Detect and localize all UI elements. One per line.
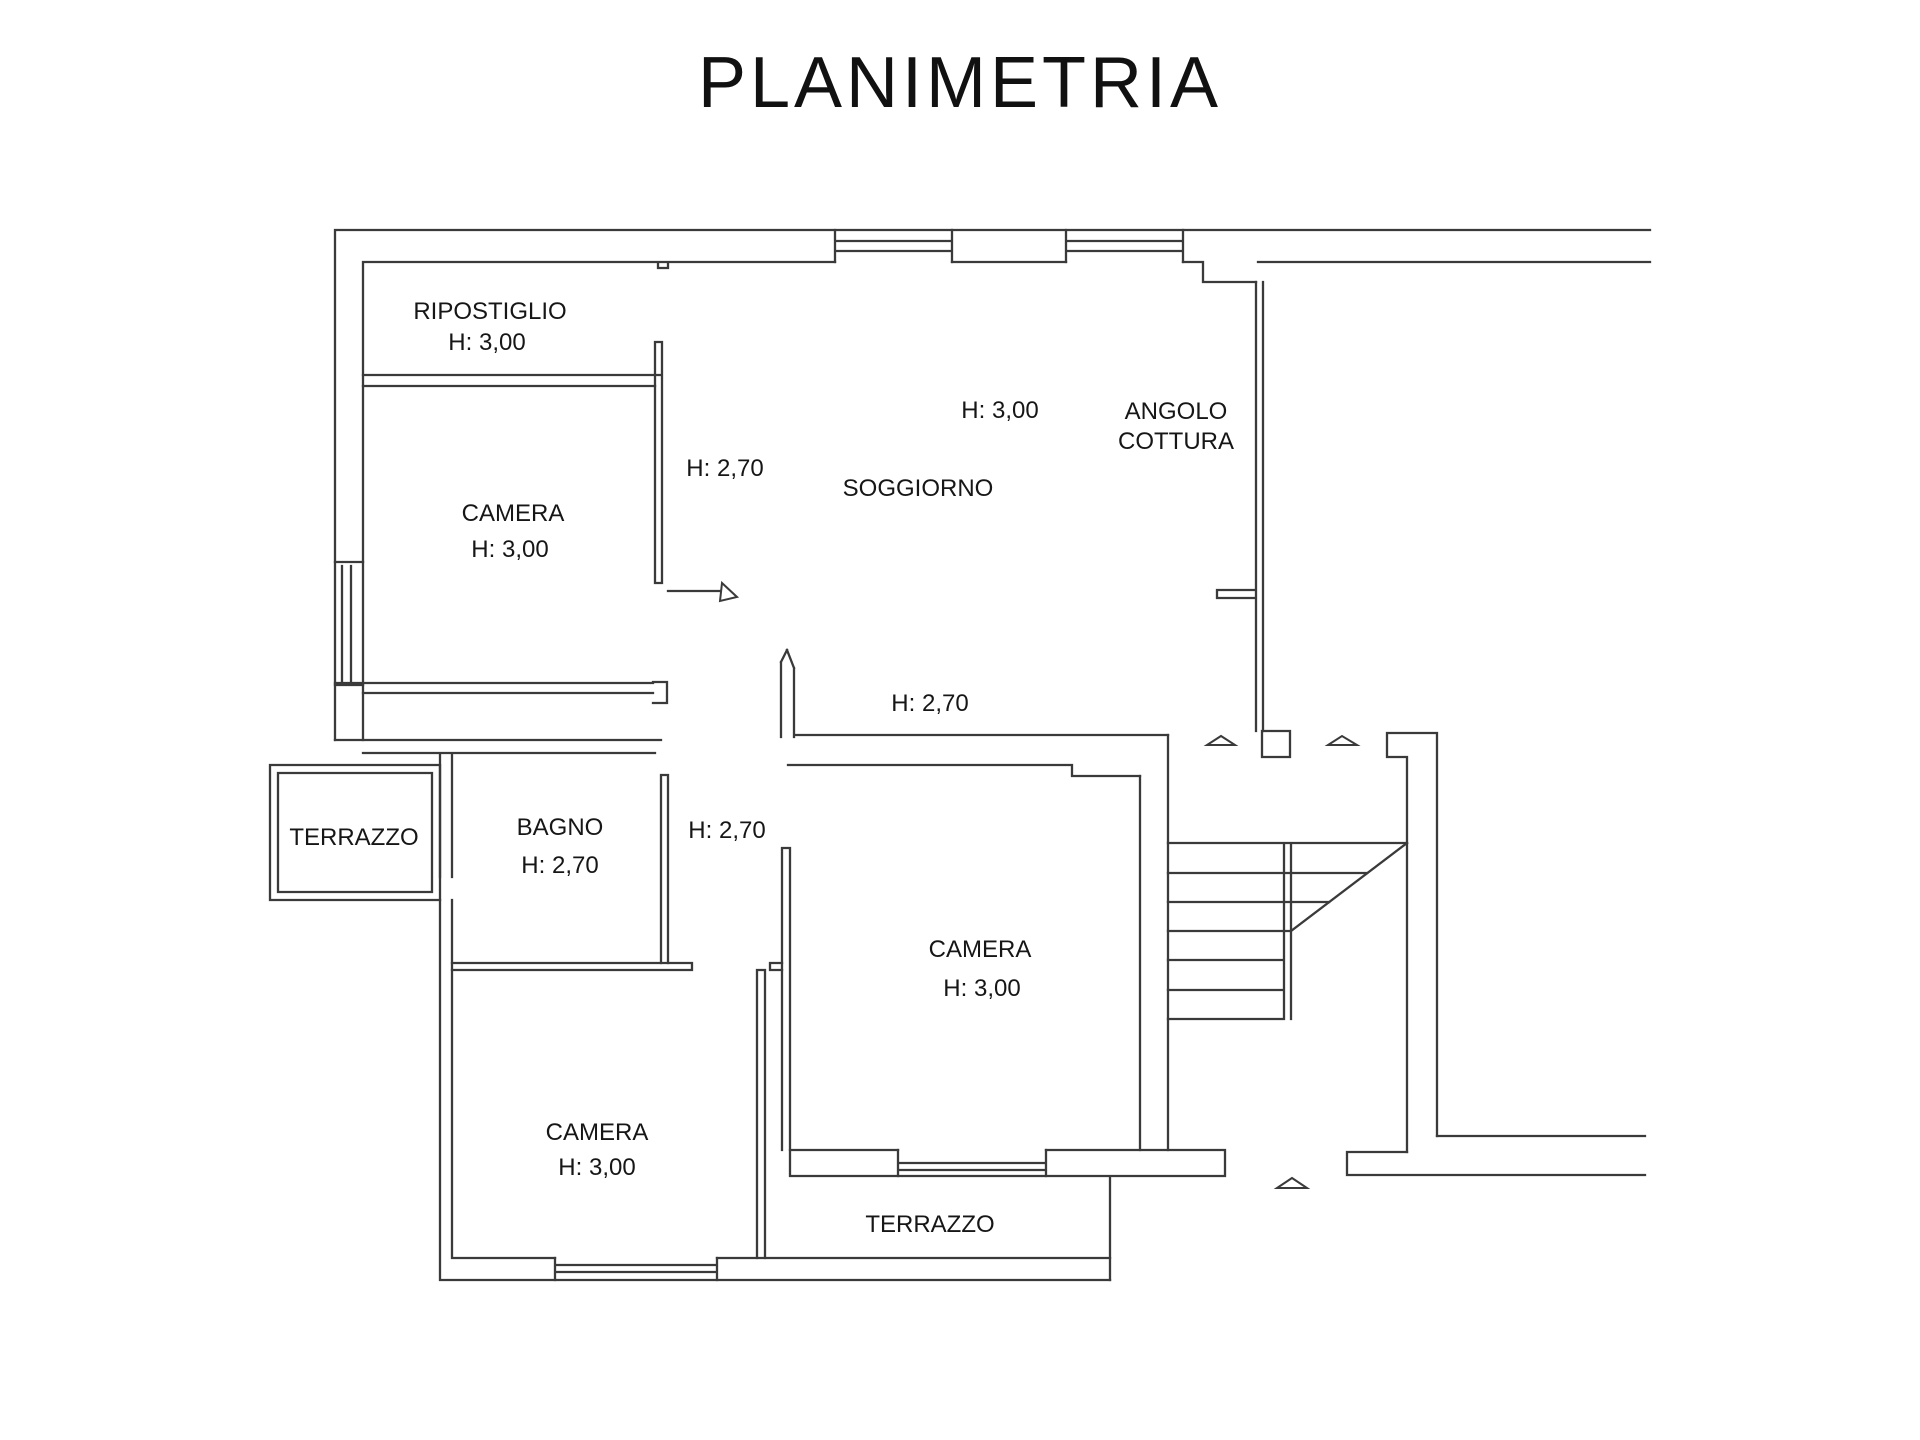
camera-centro-left-wall: [782, 848, 790, 1150]
ripostiglio-label: RIPOSTIGLIO: [413, 298, 566, 325]
window-top-right: [1066, 230, 1183, 262]
floorplan-drawing: RIPOSTIGLIOH: 3,00CAMERAH: 3,00H: 2,70H:…: [0, 0, 1920, 1440]
camera-nw-label: CAMERA: [462, 500, 565, 527]
window-left-wall: [335, 562, 363, 685]
camera-nw-door-arrow: [720, 583, 737, 601]
camera-sw-label: CAMERA: [546, 1119, 649, 1146]
window-bottom-camera: [555, 1258, 717, 1280]
stair-right-wall: [1387, 733, 1437, 1152]
stairwell: [1140, 733, 1645, 1175]
window-top-left: [835, 230, 952, 262]
corridor-height-label: H: 2,70: [688, 817, 765, 844]
angolo-line1-label: ANGOLO: [1125, 398, 1228, 425]
bagno-height-label: H: 2,70: [521, 852, 598, 879]
entry-arrow-left: [1207, 736, 1235, 745]
camera-nw-bottom-wall: [335, 682, 667, 703]
floorplan-page: PLANIMETRIA: [0, 0, 1920, 1440]
camera-sw-right-wall: [757, 970, 765, 1258]
railing-terrace-bottom: [898, 1150, 1046, 1176]
hallway-top-wall: [788, 735, 1168, 776]
stair-left-wall: [1140, 735, 1168, 1150]
entry-and-kitchen: [1207, 282, 1357, 1188]
soggiorno-camera-divider: [655, 342, 662, 583]
terrazzo-ovest-label: TERRAZZO: [289, 824, 418, 851]
bagno-label: BAGNO: [517, 814, 604, 841]
angolo-line2-label: COTTURA: [1118, 428, 1234, 455]
bathroom-walls: [452, 775, 790, 1258]
south-passage-arrow: [1277, 1178, 1307, 1188]
soggiorno-height-label: H: 3,00: [961, 397, 1038, 424]
bagno-right-wall: [661, 775, 668, 963]
windows: [335, 230, 1183, 1280]
soggiorno-label: SOGGIORNO: [843, 475, 994, 502]
camera-sw-height-label: H: 3,00: [558, 1154, 635, 1181]
ripostiglio-height-label: H: 3,00: [448, 329, 525, 356]
camera-nw-height-label: H: 3,00: [471, 536, 548, 563]
divider-height-label: H: 2,70: [686, 455, 763, 482]
camera-centro-height-label: H: 3,00: [943, 975, 1020, 1002]
entry-arrow-right: [1328, 736, 1357, 745]
camera-centro-label: CAMERA: [929, 936, 1032, 963]
stair-bottom-band: [1347, 1136, 1645, 1175]
hall-height-label: H: 2,70: [891, 690, 968, 717]
ripostiglio-bottom-wall: [363, 375, 660, 386]
entry-door-hinge-block: [1262, 731, 1290, 757]
exterior-walls: [335, 230, 1650, 1280]
bagno-bottom-wall: [452, 963, 782, 970]
kitchen-partition-wall: [1217, 282, 1263, 731]
stair-direction-diagonal: [1291, 843, 1407, 931]
hallway-door-jamb: [781, 650, 794, 737]
room-labels: RIPOSTIGLIOH: 3,00CAMERAH: 3,00H: 2,70H:…: [289, 298, 1234, 1238]
hallway-walls: [781, 650, 1168, 776]
terrazzo-sud-label: TERRAZZO: [865, 1211, 994, 1238]
